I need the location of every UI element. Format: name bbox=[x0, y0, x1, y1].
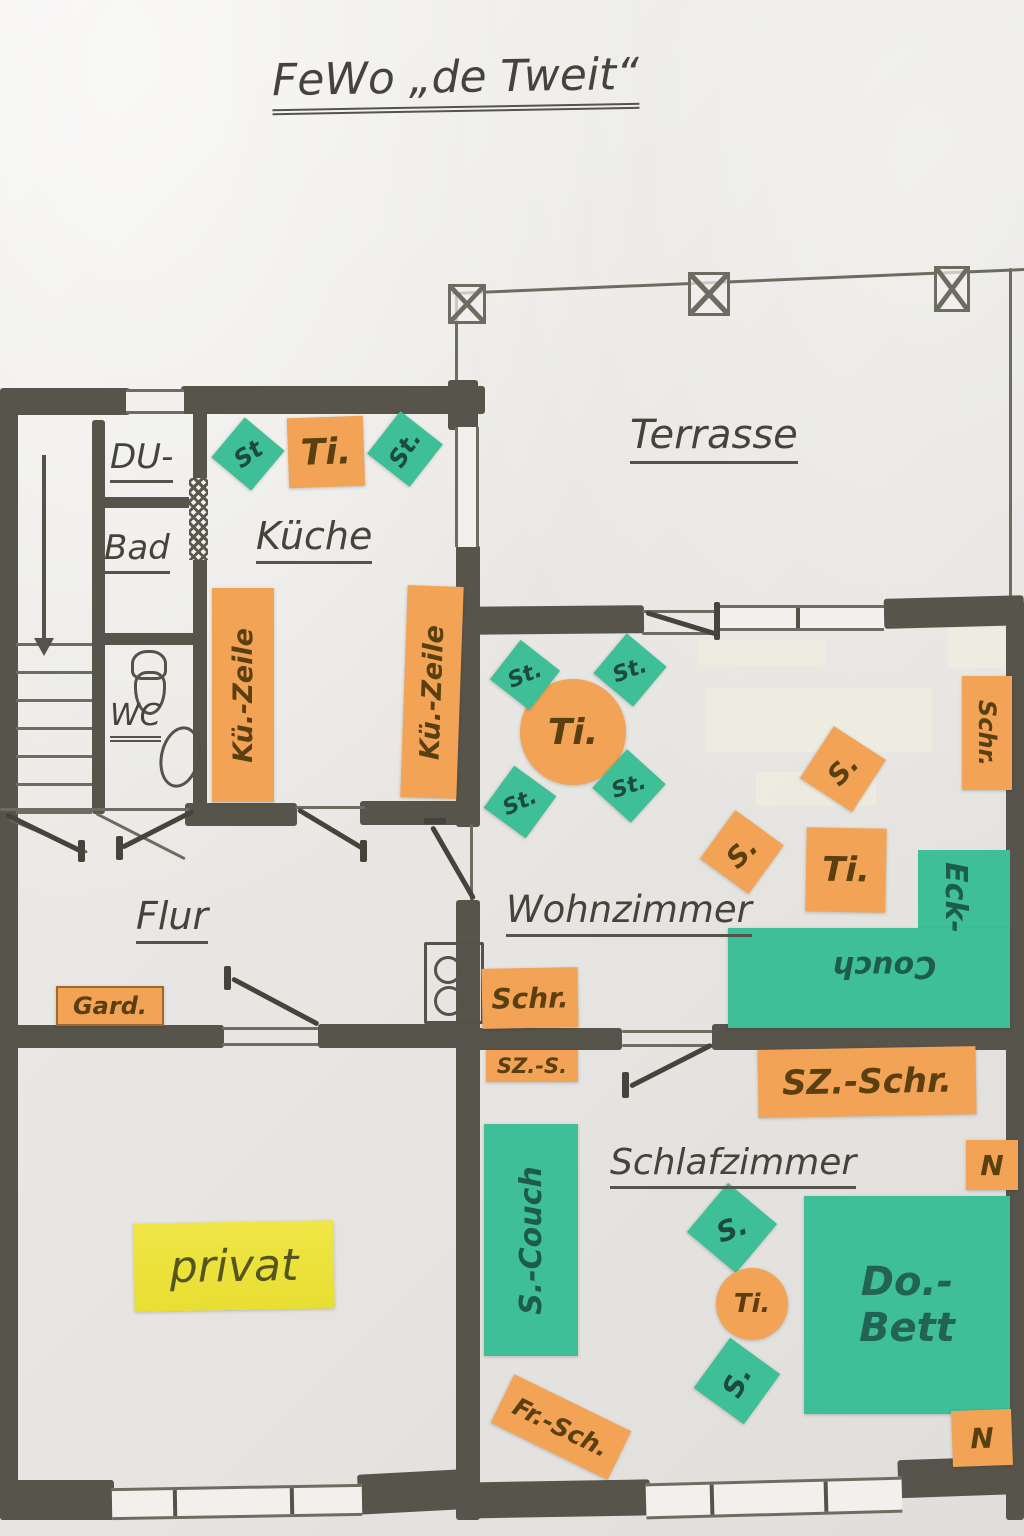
couch-label: S.-Couch bbox=[514, 1166, 549, 1315]
wardrobe-cutout: Gard. bbox=[56, 986, 164, 1026]
stair-step bbox=[16, 671, 92, 674]
plan-title: FeWo „de Tweit“ bbox=[272, 49, 640, 115]
room-label-kueche: Küche bbox=[256, 514, 372, 564]
door-leaf bbox=[714, 602, 720, 640]
bed-label: Bett bbox=[859, 1305, 955, 1351]
stair-step bbox=[16, 783, 92, 786]
terrace-edge-right bbox=[1009, 268, 1012, 604]
chair-label: St. bbox=[504, 657, 546, 693]
dresser-label: Fr.-Sch. bbox=[508, 1391, 613, 1462]
stair-step bbox=[16, 643, 92, 646]
window bbox=[646, 1477, 903, 1520]
threshold bbox=[222, 1043, 320, 1046]
stair-step bbox=[16, 755, 92, 758]
paper-patch bbox=[706, 688, 932, 752]
wall bbox=[92, 420, 105, 814]
room-label-wohnzimmer: Wohnzimmer bbox=[506, 888, 752, 937]
stair-direction-arrow-icon bbox=[34, 638, 54, 656]
corner-couch-label: Couch bbox=[800, 938, 970, 994]
room-label-terrasse: Terrasse bbox=[630, 412, 798, 464]
bedroom-cabinet-cutout: SZ.-Schr. bbox=[757, 1046, 976, 1118]
dresser-cutout: Fr.-Sch. bbox=[491, 1374, 632, 1480]
stair-step bbox=[16, 811, 92, 814]
door-leaf bbox=[424, 818, 446, 824]
small-table-cutout: Ti. bbox=[716, 1268, 788, 1340]
wall bbox=[470, 605, 644, 635]
window-mullion bbox=[796, 608, 800, 628]
window-mullion bbox=[290, 1488, 294, 1514]
wall bbox=[0, 410, 18, 1520]
corner-couch-label: Eck- bbox=[930, 852, 980, 942]
wall bbox=[458, 1479, 651, 1518]
shower-hatch bbox=[189, 478, 208, 560]
chair-label: St bbox=[228, 434, 268, 473]
room-label-bad: Bad bbox=[104, 528, 170, 574]
side-table-cutout: Ti. bbox=[805, 827, 886, 912]
door-leaf bbox=[224, 966, 231, 990]
stair-step bbox=[16, 727, 92, 730]
door-leaf bbox=[297, 807, 366, 851]
stair-direction-arrow-icon bbox=[42, 455, 46, 640]
wall bbox=[456, 1033, 480, 1520]
couch-cutout: S.-Couch bbox=[484, 1124, 578, 1356]
room-label-schlafzimmer: Schlafzimmer bbox=[610, 1142, 856, 1189]
small-cabinet-label: SZ.-S. bbox=[497, 1054, 567, 1078]
armchair-label: S. bbox=[712, 1207, 752, 1249]
armchair-label: S. bbox=[715, 1360, 758, 1402]
window-mullion bbox=[710, 1485, 715, 1515]
wall bbox=[181, 386, 485, 414]
nightstand-label: N bbox=[970, 1421, 995, 1455]
wall bbox=[448, 380, 478, 430]
kitchen-counter-cutout: Kü.-Zeile bbox=[400, 585, 463, 799]
wall bbox=[98, 497, 197, 508]
wall bbox=[0, 388, 130, 415]
wall bbox=[0, 1025, 224, 1048]
chair-label: St. bbox=[609, 769, 650, 804]
floor-plan-paper: FeWo „de Tweit“ Terrasse bbox=[0, 0, 1024, 1536]
door-leaf bbox=[78, 840, 85, 862]
wardrobe-label: Gard. bbox=[73, 992, 147, 1020]
window-mullion bbox=[824, 1482, 829, 1512]
chair-cutout: St bbox=[211, 417, 284, 490]
door-leaf bbox=[231, 976, 320, 1026]
bed-label: Do.- bbox=[861, 1259, 953, 1305]
paper-patch bbox=[698, 639, 826, 667]
nightstand-label: N bbox=[980, 1149, 1003, 1182]
table-cutout: Ti. bbox=[287, 416, 365, 489]
threshold bbox=[222, 1027, 320, 1030]
door-leaf bbox=[116, 836, 123, 860]
room-label-du: DU- bbox=[110, 437, 173, 483]
armchair-label: S. bbox=[820, 746, 865, 791]
armchair-label: S. bbox=[719, 829, 764, 874]
door-leaf bbox=[622, 1072, 629, 1098]
nightstand-cutout: N bbox=[951, 1409, 1013, 1467]
cabinet-cutout: Schr. bbox=[481, 967, 578, 1029]
kitchen-counter-cutout: Kü.-Zeile bbox=[212, 588, 274, 802]
door-leaf bbox=[629, 1043, 713, 1089]
stair-step bbox=[16, 699, 92, 702]
terrace-post-icon bbox=[688, 272, 730, 316]
window bbox=[112, 1484, 363, 1520]
armchair-cutout: S. bbox=[687, 1183, 777, 1273]
door-leaf bbox=[360, 840, 367, 862]
cabinet-cutout: Schr. bbox=[962, 676, 1012, 790]
stove-burner-icon bbox=[434, 956, 462, 984]
wall bbox=[318, 1024, 458, 1048]
table-label: Ti. bbox=[548, 712, 599, 753]
threshold bbox=[622, 1030, 714, 1033]
side-table-label: Ti. bbox=[822, 850, 870, 891]
terrace-post-icon bbox=[934, 266, 970, 312]
wall bbox=[98, 633, 197, 645]
room-label-flur: Flur bbox=[136, 894, 208, 944]
window bbox=[718, 605, 884, 631]
chair-cutout: St. bbox=[367, 411, 443, 487]
cabinet-label: Schr. bbox=[973, 700, 1001, 766]
room-label-wc: WC bbox=[110, 698, 161, 742]
armchair-cutout: S. bbox=[694, 1338, 781, 1425]
stove-burner-icon bbox=[434, 986, 464, 1016]
chair-label: St. bbox=[499, 784, 541, 821]
bedroom-cabinet-label: SZ.-Schr. bbox=[782, 1061, 953, 1104]
chair-label: St. bbox=[383, 425, 427, 472]
wall bbox=[884, 595, 1024, 629]
wall bbox=[0, 1480, 114, 1520]
small-table-label: Ti. bbox=[734, 1289, 771, 1319]
kitchen-counter-label: Kü.-Zeile bbox=[414, 624, 450, 760]
wall bbox=[357, 1469, 463, 1514]
armchair-cutout: S. bbox=[700, 810, 784, 894]
nightstand-cutout: N bbox=[966, 1140, 1018, 1190]
small-cabinet-cutout: SZ.-S. bbox=[486, 1050, 578, 1082]
threshold bbox=[295, 806, 365, 809]
cabinet-label: Schr. bbox=[491, 981, 569, 1015]
wall bbox=[185, 803, 297, 826]
window bbox=[455, 427, 479, 547]
table-label: Ti. bbox=[300, 431, 352, 474]
wall bbox=[458, 1028, 622, 1050]
window-mullion bbox=[173, 1490, 177, 1516]
window bbox=[126, 389, 184, 414]
double-bed-cutout: Do.- Bett bbox=[804, 1196, 1010, 1414]
kitchen-counter-label: Kü.-Zeile bbox=[228, 628, 259, 763]
private-room-label: privat bbox=[133, 1220, 335, 1311]
chair-label: St. bbox=[609, 652, 650, 687]
terrace-post-icon bbox=[448, 284, 486, 324]
